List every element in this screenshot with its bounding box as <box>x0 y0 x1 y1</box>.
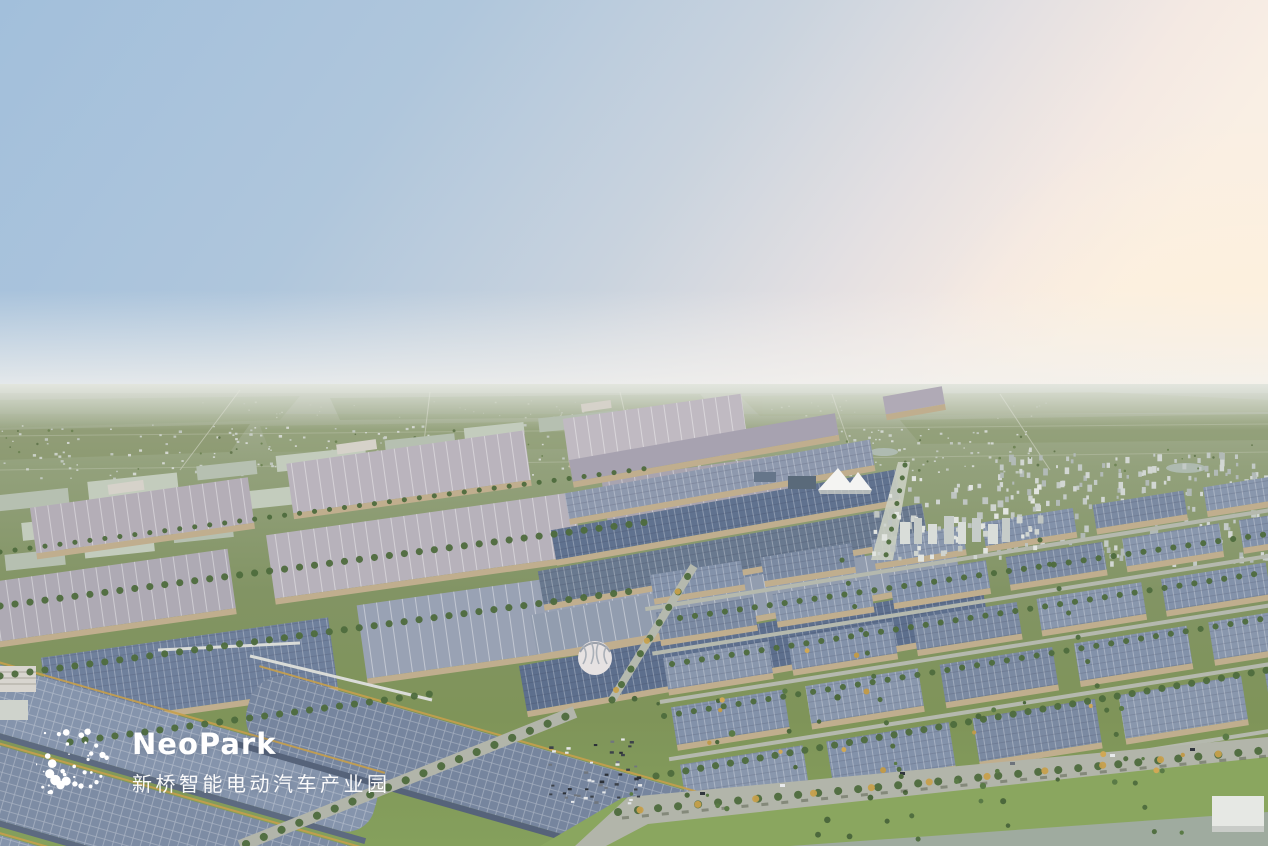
arena-building <box>754 472 776 482</box>
dot-cluster-icon <box>36 710 122 808</box>
pond <box>870 448 898 456</box>
brand-subtitle: 新桥智能电动汽车产业园 <box>132 768 391 797</box>
round-tank <box>578 641 612 675</box>
brand-name: NeoPark <box>132 730 391 759</box>
neopark-logo: NeoPark 新桥智能电动汽车产业园 <box>36 710 391 808</box>
rendering-stage: NeoPark 新桥智能电动汽车产业园 <box>0 0 1268 846</box>
arena-building <box>788 476 816 489</box>
